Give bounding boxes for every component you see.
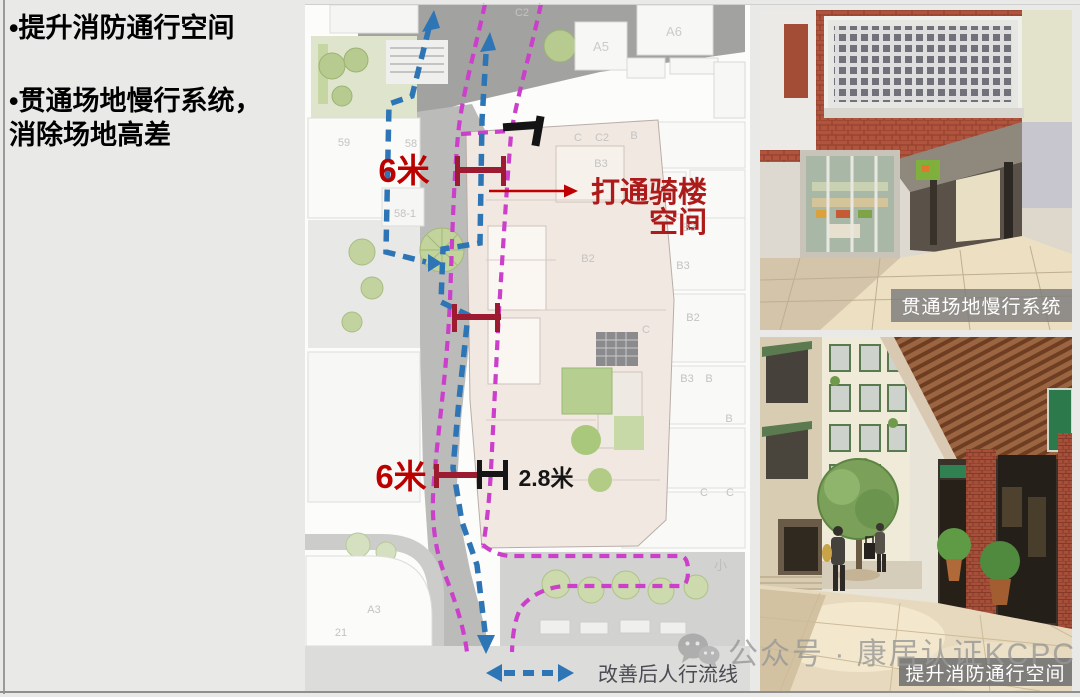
slide-left-border xyxy=(3,0,5,694)
svg-text:C: C xyxy=(574,132,582,144)
svg-text:C: C xyxy=(700,487,708,499)
watermark-text: 公众号 · 康居认证KCPC xyxy=(728,629,1076,673)
svg-text:A3: A3 xyxy=(367,604,380,616)
svg-text:59: 59 xyxy=(338,137,350,149)
svg-text:B3: B3 xyxy=(682,222,695,234)
svg-text:C: C xyxy=(642,324,650,336)
render-photo-slow-traffic xyxy=(760,10,1072,330)
slide-top-border xyxy=(305,4,1080,5)
annotation-qilou-line1: 打通骑楼 xyxy=(591,176,707,209)
svg-text:A5: A5 xyxy=(593,39,609,54)
dimension-6m-top: 6米 xyxy=(378,152,429,189)
svg-text:B3: B3 xyxy=(676,260,689,272)
svg-text:C2: C2 xyxy=(595,132,609,144)
svg-text:21: 21 xyxy=(335,627,347,639)
watermark: 公众号 · 康居认证KCPC xyxy=(676,628,1076,674)
svg-text:B2: B2 xyxy=(686,312,699,324)
storefront xyxy=(800,150,900,258)
bullet-slow-traffic: •贯通场地慢行系统， 消除场地高差 xyxy=(9,85,309,152)
dimension-6m-bottom: 6米 xyxy=(375,458,426,495)
svg-text:B3: B3 xyxy=(594,158,607,170)
svg-text:58: 58 xyxy=(405,138,417,150)
annotation-qilou-line2: 空间 xyxy=(649,205,707,239)
street-name-label: 小 xyxy=(714,558,727,573)
site-plan: 6米 6米 2.8米 打通骑楼 空间 C2 A5 A6 59 58 C C2 B… xyxy=(305,0,750,697)
svg-text:C2: C2 xyxy=(515,7,529,19)
left-building xyxy=(760,337,824,589)
svg-text:B: B xyxy=(630,130,637,142)
photo-caption-slow-traffic: 贯通场地慢行系统 xyxy=(891,289,1072,322)
lattice-window xyxy=(826,18,1020,110)
bullet-fire-access: •提升消防通行空间 xyxy=(9,12,309,45)
presentation-slide: •提升消防通行空间 •贯通场地慢行系统， 消除场地高差 xyxy=(0,0,1080,697)
dimension-2-8m: 2.8米 xyxy=(519,465,575,491)
svg-text:B3: B3 xyxy=(680,373,693,385)
svg-text:C: C xyxy=(726,487,734,499)
svg-text:B: B xyxy=(725,413,732,425)
key-points-panel: •提升消防通行空间 •贯通场地慢行系统， 消除场地高差 xyxy=(9,12,309,152)
svg-text:A6: A6 xyxy=(666,24,682,39)
wechat-icon xyxy=(676,632,720,670)
svg-text:58-1: 58-1 xyxy=(394,208,416,220)
slide-bottom-border xyxy=(0,691,1080,693)
svg-text:B: B xyxy=(705,373,712,385)
svg-text:B2: B2 xyxy=(581,253,594,265)
